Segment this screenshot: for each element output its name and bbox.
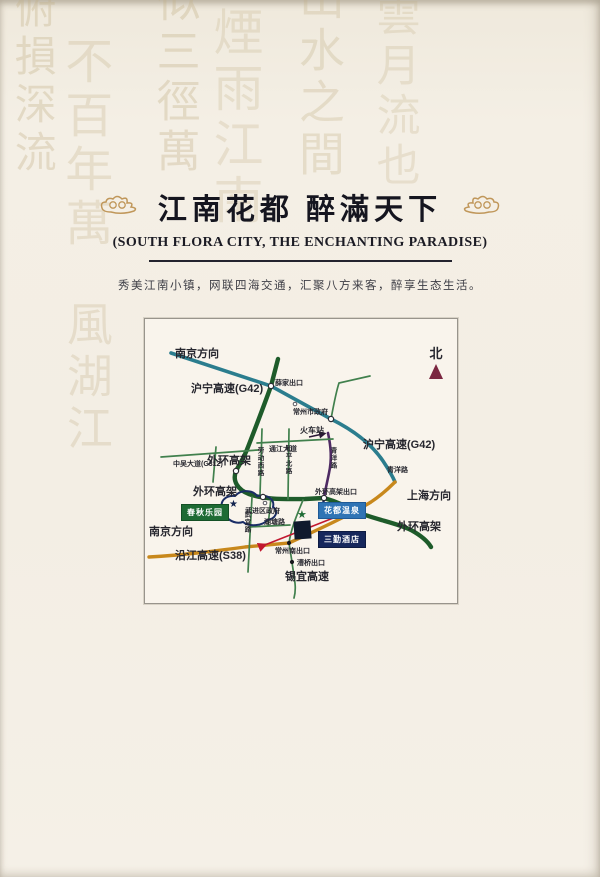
tagline: 秀美江南小镇，网联四海交通，汇聚八方来客，醉享生态生活。 bbox=[0, 277, 600, 293]
map-label-heping-north-road: 和平北路 bbox=[282, 445, 292, 475]
map-label-qingyang-road-right: 青洋路 bbox=[387, 465, 408, 475]
map-label-shanghai-direction: 上海方向 bbox=[407, 487, 451, 503]
map-label-laodong-west-road: 劳动西路 bbox=[254, 447, 264, 477]
north-arrow-icon bbox=[429, 364, 443, 379]
map-label-huning-expressway-left: 沪宁高速(G42) bbox=[191, 380, 263, 396]
map-label-caoqiao-exit: 漕桥出口 bbox=[297, 558, 325, 568]
divider-rule bbox=[149, 260, 452, 262]
badge-flora-hot-spring: 花都温泉 bbox=[318, 502, 366, 519]
map-label-qingyang-road-vertical: 青洋路 bbox=[327, 447, 337, 470]
map-label-changzhou-government: 常州市政府 bbox=[293, 407, 328, 417]
location-map: 南京方向 沪宁高速(G42) 外环高架 沪宁高速(G42) 上海方向 外环高架 … bbox=[144, 318, 458, 604]
park-star-icon: ★ bbox=[229, 500, 238, 510]
header: 江南花都 醉滿天下 (SOUTH FLORA CITY, THE ENCHANT… bbox=[0, 186, 600, 293]
english-subtitle: (SOUTH FLORA CITY, THE ENCHANTING PARADI… bbox=[0, 235, 600, 251]
calligraphy-watermark: 雲月流也 bbox=[368, 0, 419, 192]
map-label-outer-ring-exit: 外环高架出口 bbox=[315, 487, 357, 497]
map-label-nanjing-direction-top: 南京方向 bbox=[175, 345, 219, 361]
page-title: 江南花都 醉滿天下 bbox=[158, 186, 442, 228]
map-label-outer-ring-lower-left: 外环高架 bbox=[193, 483, 237, 499]
map-label-hutang-road: 湖塘路 bbox=[264, 517, 285, 527]
map-label-xiyi-expressway: 锡宜高速 bbox=[285, 568, 329, 584]
cloud-ornament-icon bbox=[456, 195, 502, 220]
calligraphy-watermark: 俯損深流 bbox=[8, 0, 56, 178]
spa-star-icon: ★ bbox=[297, 510, 307, 521]
map-label-wuyi-road: 武宜路 bbox=[241, 511, 251, 534]
north-indicator: 北 bbox=[429, 343, 443, 379]
calligraphy-watermark: 似三徑萬 bbox=[148, 0, 199, 178]
calligraphy-watermark: 山水之間 bbox=[292, 0, 345, 182]
map-label-huning-expressway-right: 沪宁高速(G42) bbox=[363, 436, 435, 452]
north-label: 北 bbox=[429, 343, 443, 362]
map-label-nanjing-direction-bottom: 南京方向 bbox=[149, 523, 193, 539]
badge-chunqiu-park: 春秋乐园 bbox=[181, 504, 229, 521]
hotel-building-icon bbox=[293, 520, 311, 539]
map-label-xuejia-exit: 薛家出口 bbox=[275, 378, 303, 388]
cloud-ornament-icon bbox=[98, 195, 144, 220]
map-label-zhongwu-avenue: 中吴大道(G312) bbox=[173, 459, 223, 469]
map-label-outer-ring-right: 外环高架 bbox=[397, 518, 441, 534]
calligraphy-watermark: 風湖江 bbox=[60, 300, 113, 456]
map-label-yanjiang-expressway: 沿江高速(S38) bbox=[175, 547, 246, 563]
brochure-page: 俯損深流 不百年萬 似三徑萬 煙雨江南 山水之間 雲月流也 風湖江 江南花都 醉… bbox=[0, 0, 600, 877]
map-label-train-station: 火车站 bbox=[300, 425, 324, 436]
badge-sanqin-hotel: 三勤酒店 bbox=[318, 531, 366, 548]
map-label-changzhou-south-exit: 常州南出口 bbox=[275, 546, 310, 556]
